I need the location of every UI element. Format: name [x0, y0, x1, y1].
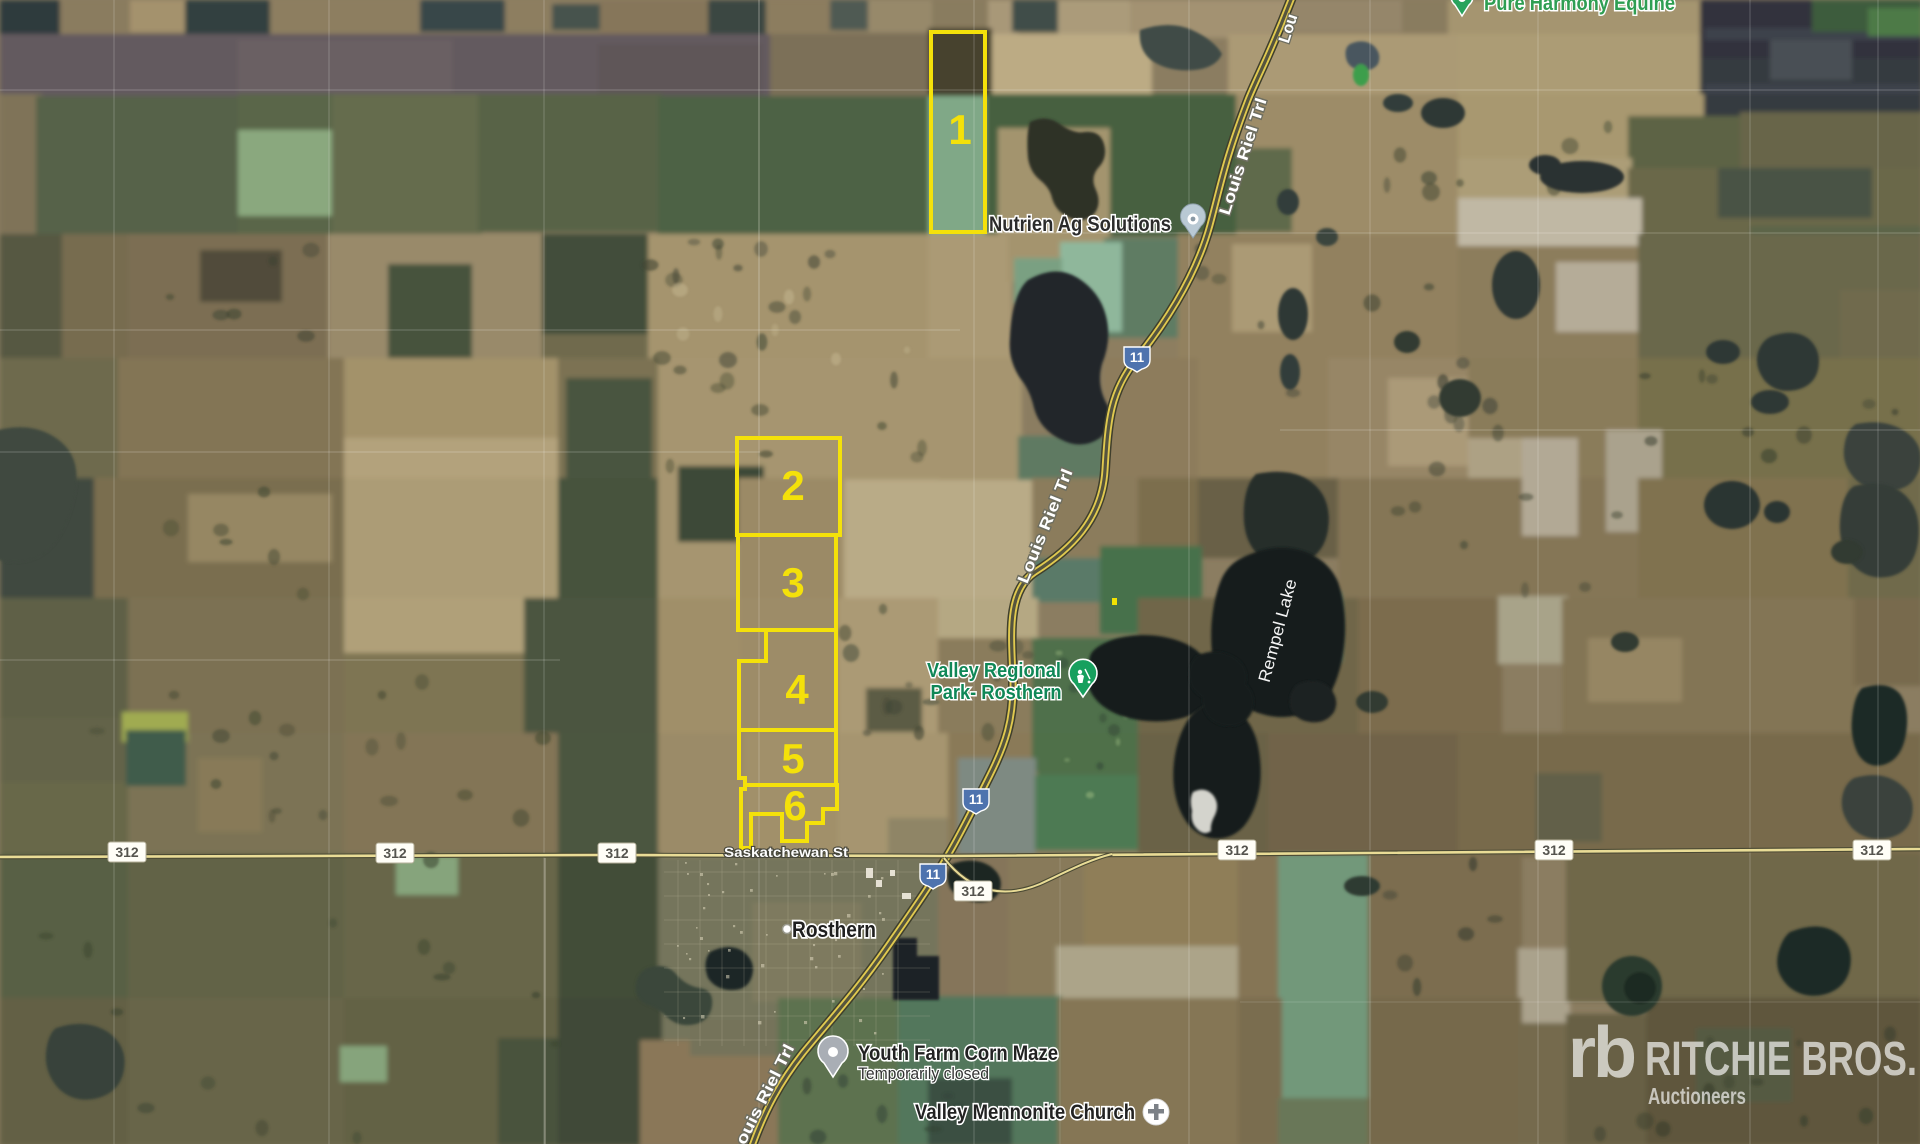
svg-text:Saskatchewan St: Saskatchewan St [724, 844, 848, 860]
svg-text:Pure Harmony Equine: Pure Harmony Equine [1484, 0, 1675, 15]
svg-text:11: 11 [926, 867, 941, 882]
svg-text:Rosthern: Rosthern [792, 917, 876, 942]
svg-text:2: 2 [781, 462, 804, 509]
svg-text:Valley Regional: Valley Regional [927, 660, 1061, 682]
svg-text:11: 11 [1130, 350, 1145, 365]
svg-text:rb: rb [1568, 1013, 1635, 1093]
svg-text:312: 312 [605, 845, 629, 861]
svg-text:312: 312 [383, 845, 407, 861]
svg-text:312: 312 [1860, 842, 1884, 858]
svg-text:6: 6 [783, 782, 806, 829]
svg-text:312: 312 [961, 883, 985, 899]
svg-text:Youth Farm Corn Maze: Youth Farm Corn Maze [858, 1042, 1058, 1065]
svg-text:312: 312 [1225, 842, 1249, 858]
svg-text:5: 5 [781, 735, 804, 782]
svg-text:Valley Mennonite Church: Valley Mennonite Church [915, 1101, 1135, 1124]
svg-text:Auctioneers: Auctioneers [1648, 1083, 1746, 1109]
svg-text:4: 4 [785, 666, 809, 713]
svg-text:1: 1 [948, 106, 971, 153]
svg-text:RITCHIE BROS.: RITCHIE BROS. [1645, 1033, 1917, 1086]
svg-text:Nutrien Ag Solutions: Nutrien Ag Solutions [989, 213, 1171, 236]
svg-text:3: 3 [781, 559, 804, 606]
svg-text:Park- Rosthern: Park- Rosthern [931, 682, 1062, 704]
svg-text:11: 11 [969, 792, 984, 807]
svg-text:Temporarily closed: Temporarily closed [858, 1065, 989, 1083]
svg-text:312: 312 [1542, 842, 1566, 858]
svg-text:312: 312 [115, 844, 139, 860]
